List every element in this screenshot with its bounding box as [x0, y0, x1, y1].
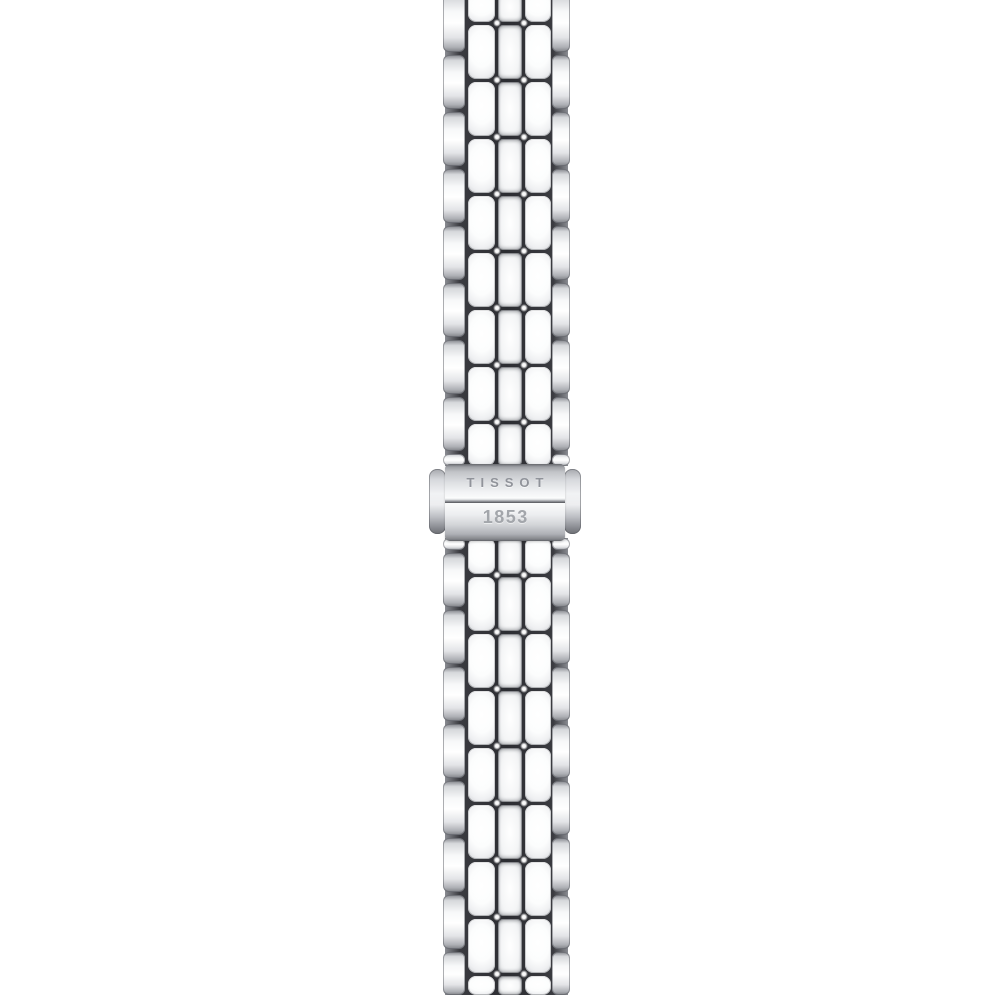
bracelet-link-center-left [468, 25, 495, 79]
bracelet-link-outer-left [443, 397, 465, 451]
bracelet-link-middle [498, 139, 522, 193]
bracelet-link-outer-right [552, 283, 570, 337]
bracelet-link-center-left [468, 862, 495, 916]
bracelet-link-center-left [468, 253, 495, 307]
bracelet-link-outer-right [552, 226, 570, 280]
bracelet-link-center-left [468, 805, 495, 859]
bracelet-link-center-right [525, 634, 551, 688]
bracelet-link-outer-right [552, 397, 570, 451]
bracelet-link-middle [498, 634, 522, 688]
clasp-top-plate: TISSOT [445, 464, 565, 497]
bracelet-link-middle [498, 805, 522, 859]
bracelet-link-outer-right [552, 169, 570, 223]
bracelet-link-center-left [468, 577, 495, 631]
brand-engraving: TISSOT [467, 475, 550, 490]
bracelet-link-middle [498, 919, 522, 973]
bracelet-link-middle [498, 862, 522, 916]
bracelet-link-center-right [525, 919, 551, 973]
bracelet-link-center-right [525, 310, 551, 364]
bracelet-link-outer-right [552, 112, 570, 166]
bracelet-link-outer-left [443, 0, 465, 52]
bracelet-link-outer-right [552, 895, 570, 949]
bracelet-link-outer-left [443, 610, 465, 664]
bracelet-link-outer-left [443, 781, 465, 835]
bracelet-link-outer-right [552, 724, 570, 778]
bracelet-link-center-right [525, 976, 551, 996]
bracelet-link-outer-left [443, 340, 465, 394]
bracelet-link-outer-right [552, 0, 570, 52]
bracelet-link-outer-right [552, 55, 570, 109]
bracelet-link-center-right [525, 424, 551, 467]
bracelet-link-outer-left [443, 226, 465, 280]
bracelet-link-middle [498, 0, 522, 22]
clasp-bottom-plate: 1853 [445, 503, 565, 541]
bracelet-link-center-right [525, 139, 551, 193]
bracelet-link-middle [498, 424, 522, 467]
bracelet-link-middle [498, 25, 522, 79]
bracelet-link-outer-right [552, 667, 570, 721]
bracelet-link-middle [498, 538, 522, 574]
clasp-ear-left [429, 469, 446, 534]
bracelet-link-center-left [468, 0, 495, 22]
bracelet-link-center-left [468, 691, 495, 745]
bracelet-link-outer-right [552, 838, 570, 892]
bracelet-link-middle [498, 976, 522, 996]
bracelet-link-center-right [525, 862, 551, 916]
bracelet-link-center-right [525, 367, 551, 421]
strap-upper [443, 0, 570, 466]
bracelet-link-outer-left [443, 667, 465, 721]
bracelet-link-center-left [468, 82, 495, 136]
clasp: TISSOT 1853 [445, 464, 565, 541]
bracelet-link-center-left [468, 919, 495, 973]
bracelet-link-center-right [525, 577, 551, 631]
bracelet-link-center-left [468, 310, 495, 364]
bracelet-link-outer-right [552, 781, 570, 835]
bracelet-link-middle [498, 367, 522, 421]
bracelet-link-middle [498, 196, 522, 250]
bracelet-link-center-right [525, 196, 551, 250]
bracelet-link-outer-left [443, 838, 465, 892]
bracelet-link-center-left [468, 196, 495, 250]
bracelet-link-outer-left [443, 952, 465, 996]
bracelet-link-center-right [525, 253, 551, 307]
bracelet-link-middle [498, 577, 522, 631]
bracelet-link-center-right [525, 538, 551, 574]
bracelet-link-outer-left [443, 55, 465, 109]
bracelet-link-middle [498, 82, 522, 136]
bracelet-link-middle [498, 310, 522, 364]
bracelet-link-outer-left [443, 283, 465, 337]
bracelet-link-outer-right [552, 610, 570, 664]
bracelet-link-center-left [468, 976, 495, 996]
bracelet-link-center-left [468, 748, 495, 802]
bracelet-link-center-right [525, 748, 551, 802]
product-photo: TISSOT 1853 [0, 0, 1000, 1000]
bracelet-link-outer-left [443, 112, 465, 166]
bracelet-link-center-right [525, 25, 551, 79]
strap-lower [443, 538, 570, 995]
bracelet-link-outer-left [443, 724, 465, 778]
bracelet-link-center-right [525, 691, 551, 745]
bracelet: TISSOT 1853 [443, 0, 570, 1000]
bracelet-link-outer-right [552, 553, 570, 607]
bracelet-link-middle [498, 253, 522, 307]
bracelet-link-center-left [468, 424, 495, 467]
bracelet-link-center-left [468, 538, 495, 574]
year-engraving: 1853 [483, 503, 529, 528]
bracelet-link-center-left [468, 367, 495, 421]
bracelet-link-outer-left [443, 553, 465, 607]
bracelet-link-outer-right [552, 952, 570, 996]
bracelet-link-middle [498, 748, 522, 802]
bracelet-link-outer-left [443, 895, 465, 949]
bracelet-link-outer-left [443, 169, 465, 223]
bracelet-link-middle [498, 691, 522, 745]
bracelet-link-center-left [468, 139, 495, 193]
bracelet-link-center-right [525, 0, 551, 22]
clasp-ear-right [564, 469, 581, 534]
bracelet-link-center-left [468, 634, 495, 688]
bracelet-link-outer-right [552, 340, 570, 394]
bracelet-link-center-right [525, 805, 551, 859]
bracelet-link-center-right [525, 82, 551, 136]
